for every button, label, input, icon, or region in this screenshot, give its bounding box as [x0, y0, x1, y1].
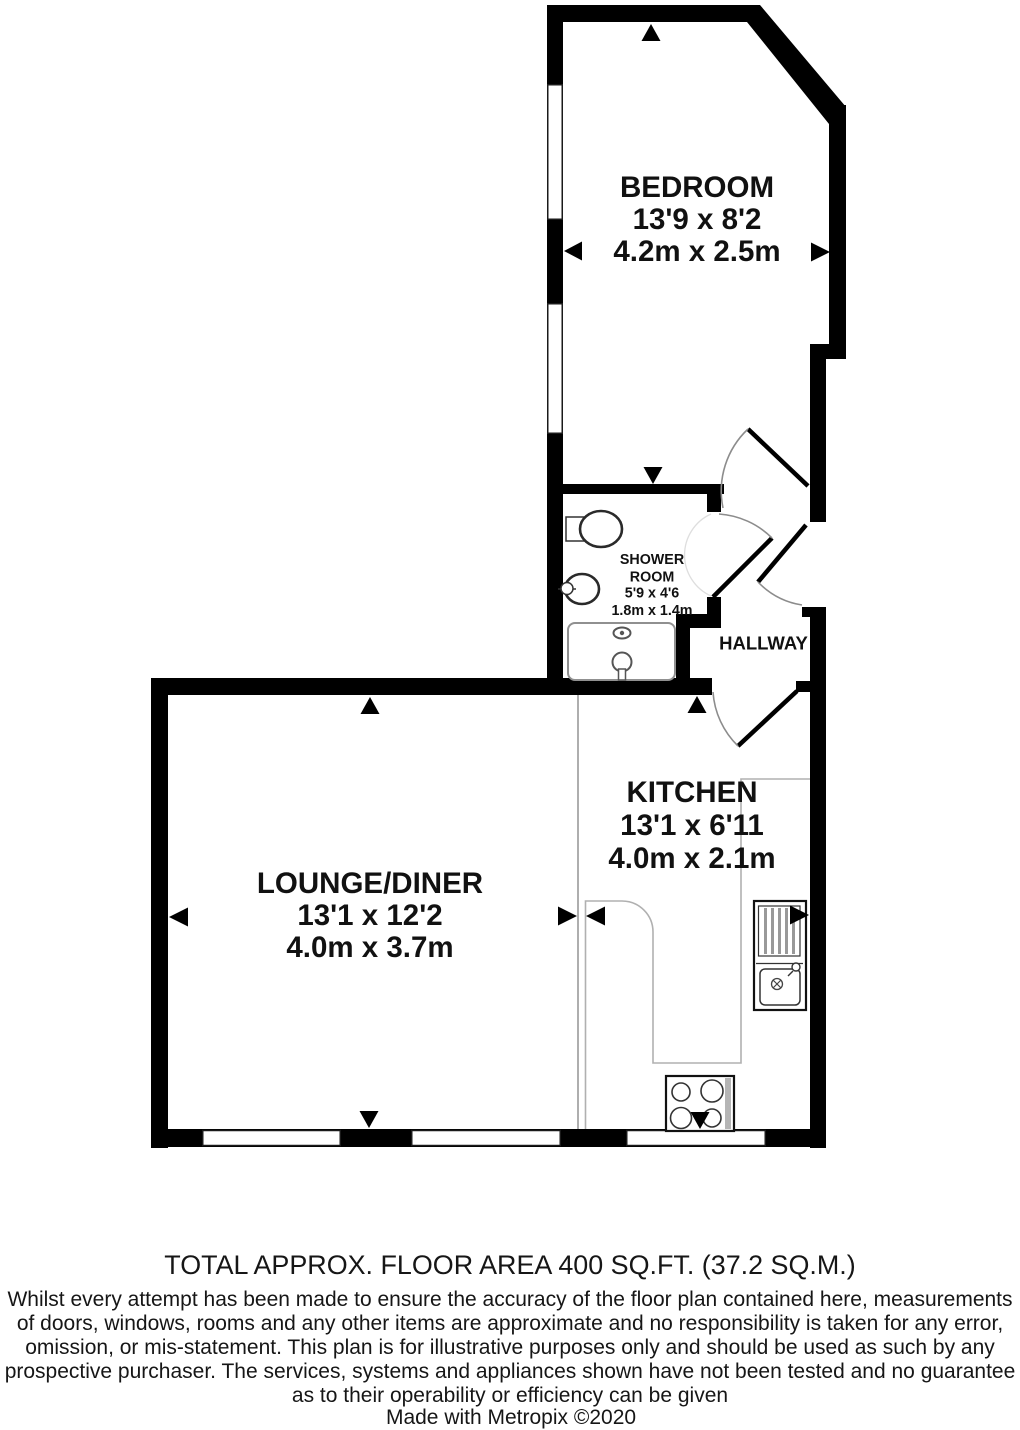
svg-text:omission, or mis-statement. Th: omission, or mis-statement. This plan is… — [25, 1336, 995, 1359]
svg-text:ROOM: ROOM — [630, 570, 674, 586]
svg-text:13'9 x 8'2: 13'9 x 8'2 — [633, 203, 762, 236]
svg-text:4.0m x 3.7m: 4.0m x 3.7m — [286, 931, 453, 964]
svg-text:LOUNGE/DINER: LOUNGE/DINER — [257, 867, 483, 900]
svg-text:prospective purchaser. The ser: prospective purchaser. The services, sys… — [5, 1360, 1016, 1383]
svg-text:4.2m x 2.5m: 4.2m x 2.5m — [613, 235, 780, 268]
svg-text:HALLWAY: HALLWAY — [719, 633, 808, 654]
svg-text:TOTAL APPROX. FLOOR AREA 400 S: TOTAL APPROX. FLOOR AREA 400 SQ.FT. (37.… — [164, 1250, 855, 1280]
svg-text:5'9 x 4'6: 5'9 x 4'6 — [625, 586, 680, 602]
svg-text:of doors, windows, rooms and a: of doors, windows, rooms and any other i… — [17, 1312, 1003, 1335]
svg-text:13'1 x 6'11: 13'1 x 6'11 — [620, 809, 764, 842]
svg-text:KITCHEN: KITCHEN — [626, 776, 757, 809]
svg-text:4.0m x 2.1m: 4.0m x 2.1m — [608, 842, 775, 875]
svg-text:Whilst every attempt has been: Whilst every attempt has been made to en… — [7, 1288, 1012, 1311]
svg-text:13'1 x 12'2: 13'1 x 12'2 — [297, 899, 442, 932]
svg-text:1.8m x 1.4m: 1.8m x 1.4m — [611, 603, 692, 619]
svg-text:SHOWER: SHOWER — [620, 552, 685, 568]
svg-text:BEDROOM: BEDROOM — [620, 171, 774, 204]
svg-text:as to their operability or eff: as to their operability or efficiency ca… — [292, 1384, 728, 1407]
svg-text:Made with Metropix ©2020: Made with Metropix ©2020 — [386, 1406, 636, 1429]
